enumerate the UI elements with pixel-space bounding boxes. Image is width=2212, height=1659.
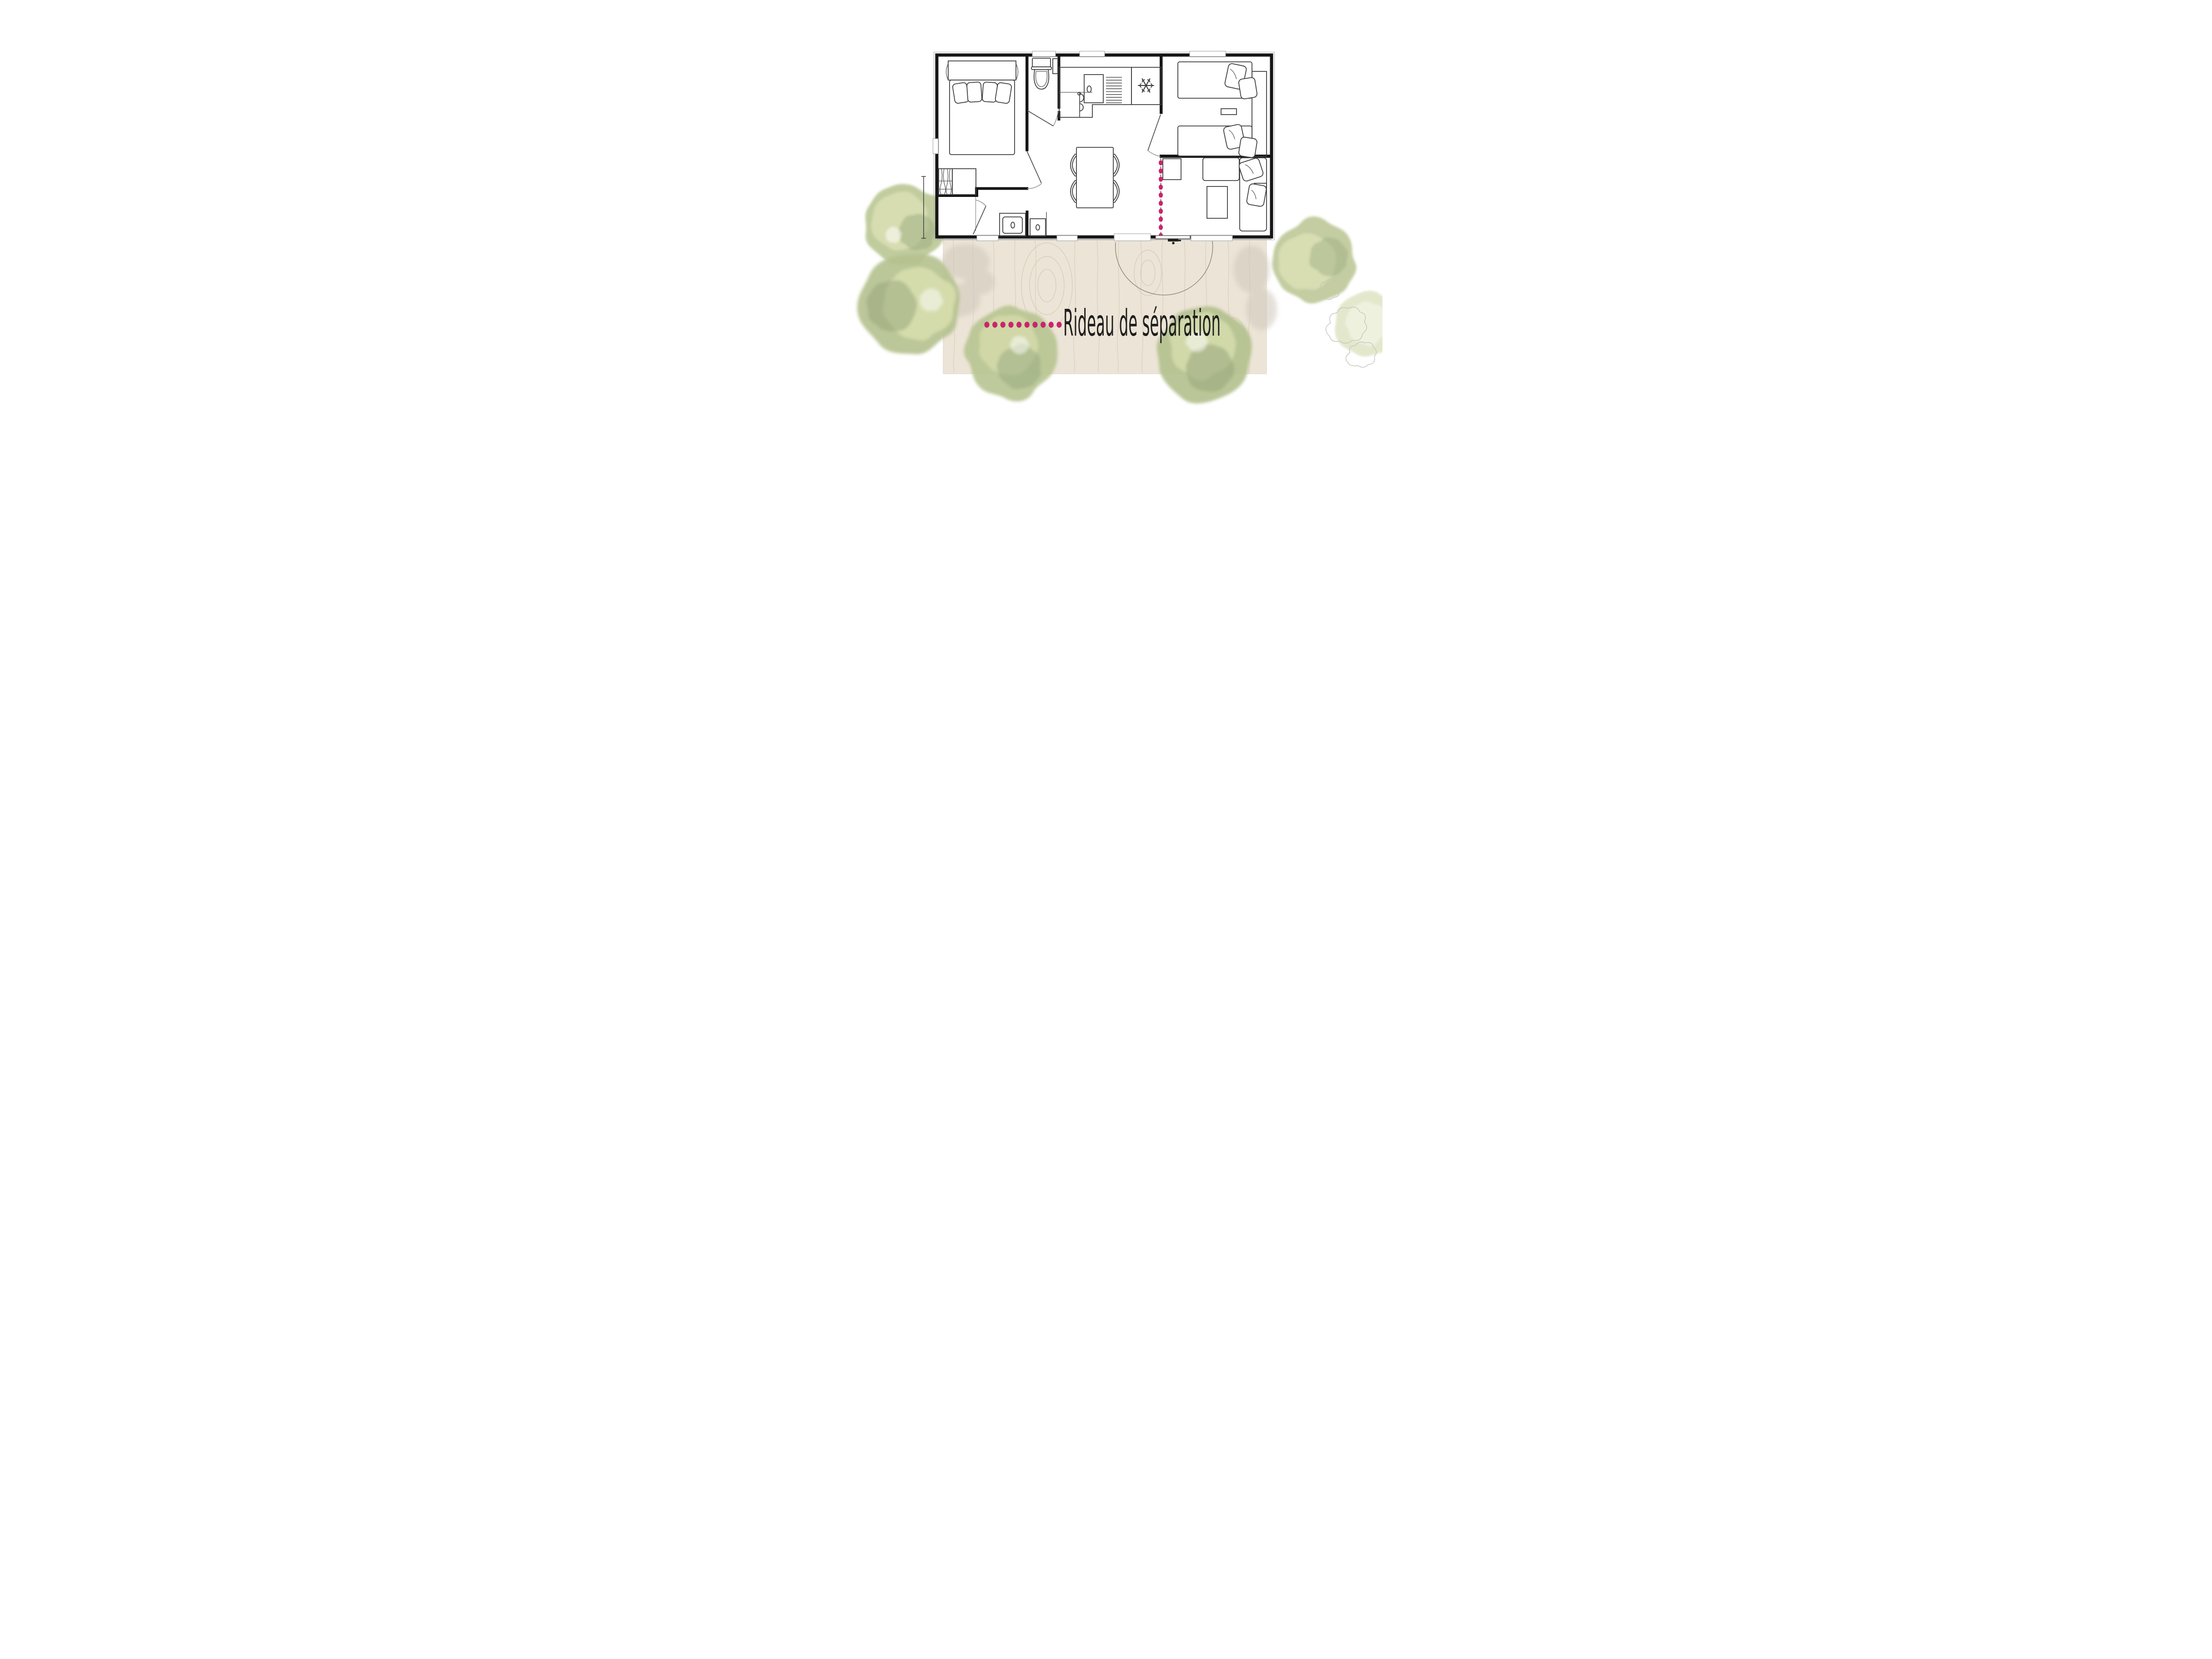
bench-bed (1203, 158, 1239, 181)
door-handle (1168, 239, 1178, 241)
door-leaf-open (1156, 236, 1190, 239)
window (933, 139, 939, 154)
pillow (1238, 136, 1257, 158)
pillow (995, 82, 1012, 104)
window (977, 235, 998, 241)
window (1191, 235, 1232, 241)
pillow (1246, 183, 1267, 207)
door-threshold (1114, 234, 1151, 241)
floor-plan-image: Rideau de séparation (829, 0, 1382, 415)
window (1190, 51, 1226, 57)
headboard (948, 61, 1016, 80)
toilet-bowl (1034, 70, 1049, 89)
floor-plan: Rideau de séparation (829, 0, 1382, 415)
toilet-cistern (1032, 58, 1051, 67)
tree (862, 181, 945, 265)
dining-table (1076, 147, 1113, 208)
window (1057, 235, 1077, 241)
legend-label: Rideau de séparation (1063, 302, 1221, 344)
pillow (1238, 77, 1257, 99)
pillow (967, 82, 982, 102)
dining-area (1071, 147, 1119, 208)
window (1032, 51, 1056, 57)
window (1080, 51, 1105, 57)
